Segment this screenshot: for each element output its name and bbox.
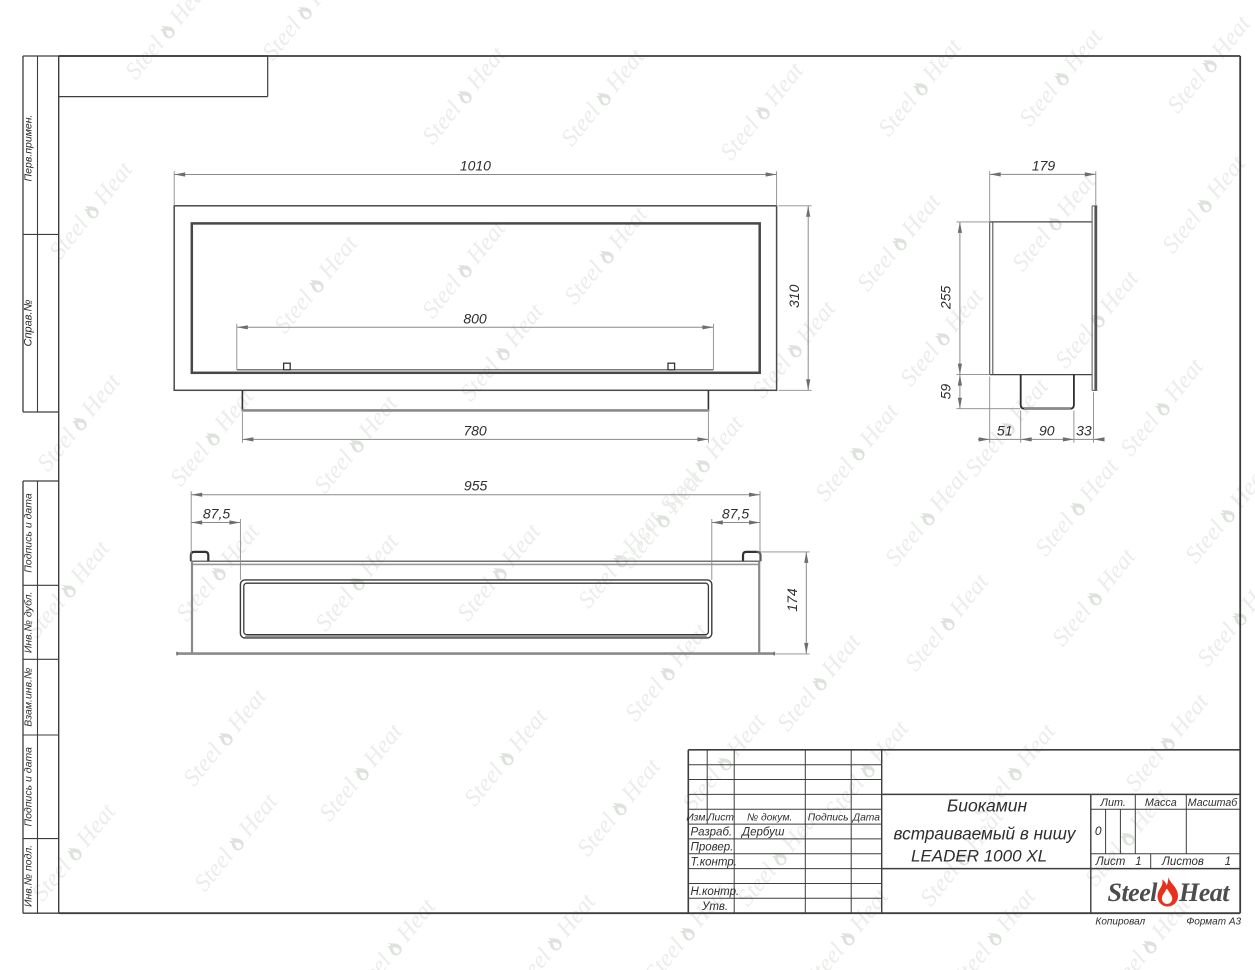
- svg-text:Масштаб: Масштаб: [1188, 797, 1239, 809]
- svg-text:1: 1: [1135, 856, 1141, 868]
- svg-text:Формат А3: Формат А3: [1186, 917, 1241, 928]
- svg-text:Утв.: Утв.: [701, 901, 728, 913]
- svg-text:Лист: Лист: [706, 813, 734, 824]
- svg-text:Подпись и дата: Подпись и дата: [23, 493, 35, 573]
- svg-text:87,5: 87,5: [722, 505, 749, 521]
- svg-text:310: 310: [786, 284, 802, 308]
- svg-text:1: 1: [1225, 856, 1231, 868]
- svg-text:Подпись: Подпись: [808, 813, 849, 824]
- svg-text:Дербуш: Дербуш: [740, 827, 785, 839]
- svg-text:Лит.: Лит.: [1100, 797, 1126, 809]
- svg-text:87,5: 87,5: [203, 505, 230, 521]
- svg-text:1010: 1010: [460, 158, 491, 174]
- svg-text:90: 90: [1039, 423, 1055, 439]
- svg-text:179: 179: [1032, 158, 1056, 174]
- svg-text:59: 59: [938, 384, 954, 400]
- svg-text:Т.контр.: Т.контр.: [691, 856, 737, 868]
- svg-text:Перв.примен.: Перв.примен.: [23, 115, 35, 182]
- svg-text:Взам.инв.№: Взам.инв.№: [23, 668, 35, 727]
- svg-text:Лист: Лист: [1095, 856, 1126, 868]
- svg-text:Инв.№ дубл.: Инв.№ дубл.: [23, 591, 35, 653]
- svg-text:174: 174: [784, 588, 800, 612]
- svg-text:Изм.: Изм.: [686, 813, 708, 824]
- svg-text:Steel: Steel: [1108, 878, 1159, 907]
- svg-text:Масса: Масса: [1145, 797, 1177, 809]
- svg-text:Листов: Листов: [1161, 856, 1204, 868]
- svg-text:0: 0: [1095, 824, 1102, 838]
- svg-text:955: 955: [464, 478, 488, 494]
- svg-text:Разраб.: Разраб.: [691, 827, 733, 839]
- svg-text:Инв.№ подл.: Инв.№ подл.: [23, 845, 35, 907]
- svg-text:51: 51: [997, 423, 1013, 439]
- svg-text:№ докум.: № докум.: [747, 813, 792, 824]
- svg-text:Справ.№: Справ.№: [23, 299, 35, 346]
- svg-text:Heat: Heat: [1178, 878, 1230, 907]
- svg-text:Копировал: Копировал: [1095, 917, 1145, 928]
- svg-text:Н.контр.: Н.контр.: [691, 886, 740, 898]
- svg-text:33: 33: [1076, 423, 1092, 439]
- svg-text:Подпись и дата: Подпись и дата: [23, 747, 35, 827]
- svg-text:Биокамин: Биокамин: [947, 796, 1028, 816]
- svg-text:780: 780: [463, 422, 487, 438]
- svg-text:Провер.: Провер.: [691, 842, 734, 854]
- svg-text:LEADER 1000 XL: LEADER 1000 XL: [911, 846, 1047, 865]
- svg-text:800: 800: [463, 310, 487, 326]
- svg-text:255: 255: [938, 286, 954, 311]
- svg-text:встраиваемый в нишу: встраиваемый в нишу: [894, 823, 1077, 843]
- svg-text:Дата: Дата: [852, 813, 880, 824]
